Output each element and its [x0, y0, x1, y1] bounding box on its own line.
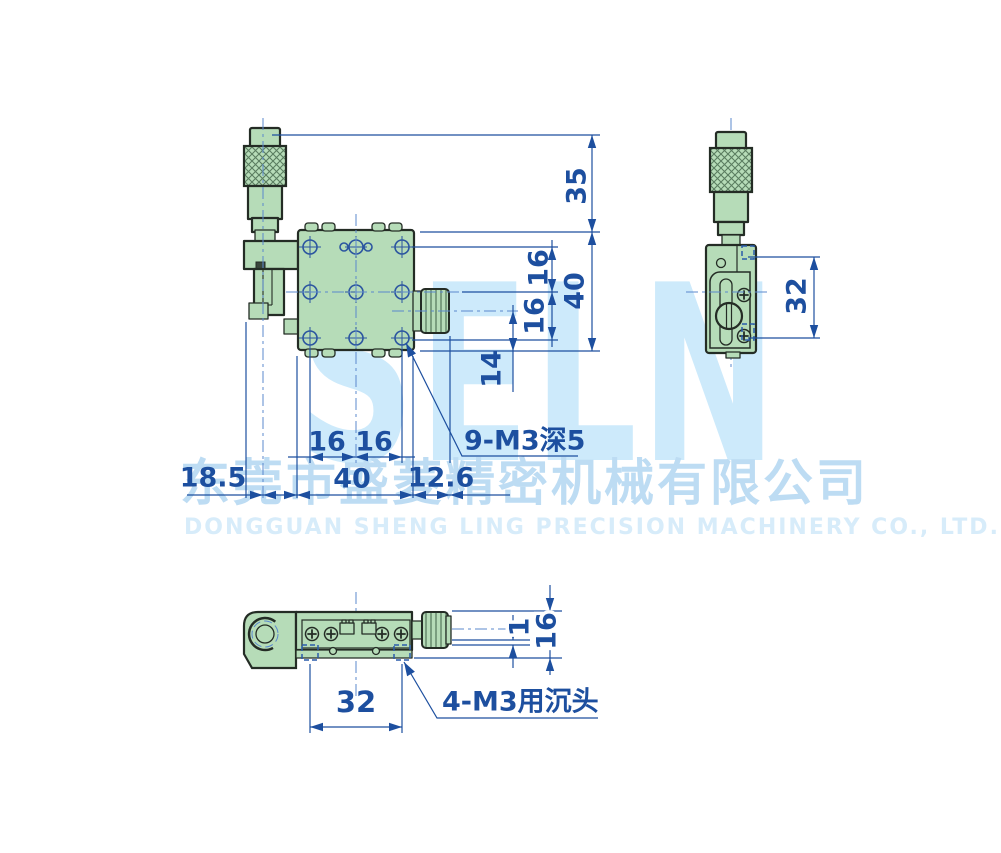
dim-16-pitch-upper: 16 — [524, 249, 555, 287]
side-screw — [738, 289, 751, 302]
base-pin-hole — [330, 648, 337, 655]
base-screw — [395, 628, 408, 641]
technical-drawing-page: SELN 东莞市盛菱精密机械有限公司 DONGGUAN SHENG LING P… — [0, 0, 1001, 853]
knob-shaft-bottom — [412, 621, 422, 639]
dim-16-pitch-right: 16 — [355, 427, 393, 458]
dim-40-width: 40 — [333, 464, 371, 495]
micrometer-head-front — [244, 128, 286, 242]
base-pin-hole — [373, 648, 380, 655]
side-knob-end — [716, 303, 742, 329]
dim-32-side: 32 — [782, 277, 813, 315]
micrometer-bracket-front — [244, 241, 298, 334]
base-screw — [306, 628, 319, 641]
drawing-canvas: 35 40 16 16 14 16 16 40 18.5 12.6 9-M3深5… — [0, 0, 1001, 853]
side-view — [686, 118, 768, 368]
base-screw — [325, 628, 338, 641]
knob-tip-bottom — [446, 616, 451, 644]
dim-12-6: 12.6 — [408, 463, 475, 494]
base-screw — [376, 628, 389, 641]
note-9-m3: 9-M3深5 — [464, 426, 585, 457]
dim-16-pitch-left: 16 — [308, 427, 346, 458]
note-4-m3: 4-M3用沉头 — [442, 687, 599, 718]
dim-35: 35 — [562, 167, 593, 205]
bracket-arm — [244, 241, 298, 269]
knob-bottom — [422, 612, 448, 648]
bracket-foot — [249, 303, 268, 319]
dim-14: 14 — [477, 350, 508, 388]
bracket-bore — [256, 625, 274, 643]
micrometer-barrel — [248, 186, 282, 219]
dim-32-bottom: 32 — [336, 685, 376, 719]
dim-16-pitch-lower: 16 — [520, 297, 551, 335]
side-pin-hole — [717, 259, 726, 268]
dim-16-thickness: 16 — [532, 612, 563, 650]
dim-40-height: 40 — [560, 272, 591, 310]
bottom-view — [244, 592, 508, 700]
body-left-protrusion — [284, 319, 298, 334]
side-bottom-nub — [726, 352, 740, 358]
micrometer-knurl — [244, 146, 286, 186]
micrometer-cap — [250, 128, 280, 147]
micrometer-head-side — [710, 132, 752, 245]
dim-18-5: 18.5 — [180, 463, 247, 494]
